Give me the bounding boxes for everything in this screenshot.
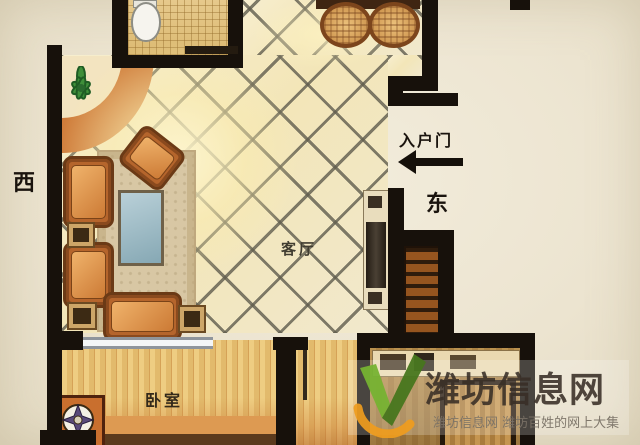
entrance-arrow-icon [413,158,463,166]
wall-niche-right [438,230,454,335]
bedroom-door [303,350,307,400]
wall-bottom-stub [40,430,96,445]
side-table [67,222,95,248]
wall-left-corner [47,331,83,350]
chair-cushion [128,134,176,181]
stool-icon [368,2,420,48]
compass-west-label: 西 [13,165,35,197]
wall-bedroom-t-top [273,337,308,350]
bedroom-label: 卧室 [145,387,183,411]
side-table-top [73,228,89,242]
speaker-icon [368,292,382,304]
entrance-arrow-head-icon [398,150,416,174]
wall-bathroom-bottom [112,55,243,68]
side-table [178,305,206,333]
loveseat-sofa [103,292,182,341]
side-table-top [73,308,91,324]
wall-top-stub [510,0,530,10]
potted-plant-icon [58,66,104,110]
bedroom-window [83,337,213,349]
glass-coffee-table [118,190,164,266]
side-table [67,302,97,330]
wall-entry-lower [388,188,404,335]
watermark-brand-text: 潍坊信息网 [425,362,605,413]
speaker-icon [368,196,382,208]
tile-floor-patch [388,55,422,77]
entrance-label: 入户门 [399,127,453,151]
wall-right-top [422,0,438,80]
stool-icon [320,2,372,48]
tv-screen-icon [366,222,386,288]
bathroom-sliding-door [185,46,238,54]
armchair [63,156,114,228]
sofa-cushion [111,301,174,332]
toilet-icon [131,2,161,42]
watermark-tagline-text: 潍坊信息网 潍坊百姓的网上大集 [433,412,619,431]
chair-cushion [71,251,106,299]
wall-bedroom-t-stem [276,350,296,445]
chair-cushion [71,165,106,219]
compass-east-label: 东 [426,186,448,218]
side-table-top [184,311,200,327]
wall-kitchen-top [357,333,535,348]
floor-plan: 西 东 入户门 客厅 卧室 潍坊信息网 潍坊信息网 潍坊百姓的网上大集 [0,0,640,445]
wall-left [47,45,62,445]
wall-entry-stub [388,93,458,106]
bed [98,416,278,445]
v-check-logo-icon [352,352,430,438]
living-room-label: 客厅 [281,238,317,259]
shoe-cabinet [404,246,441,337]
